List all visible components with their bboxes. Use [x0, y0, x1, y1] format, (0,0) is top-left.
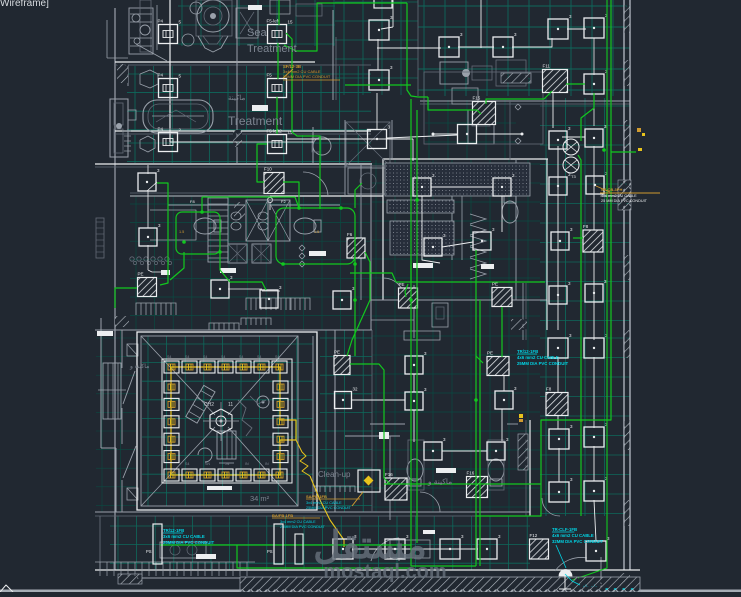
svg-text:PE: PE: [334, 350, 340, 355]
svg-text:F16: F16: [467, 471, 475, 476]
svg-text:32MM DIA PVC CONDUIT: 32MM DIA PVC CONDUIT: [552, 539, 604, 544]
svg-text:F5-left2: F5-left2: [267, 129, 283, 134]
svg-text:3x4 mm2 CU CABLE: 3x4 mm2 CU CABLE: [280, 520, 316, 524]
svg-text:TR-CLF-1FB: TR-CLF-1FB: [552, 527, 577, 532]
svg-text:BA/FB-1FB: BA/FB-1FB: [272, 513, 293, 518]
svg-text:F15: F15: [473, 96, 481, 101]
svg-text:JN: JN: [225, 462, 230, 466]
svg-text:P4: P4: [158, 73, 164, 78]
svg-text:S4: S4: [239, 355, 243, 359]
svg-text:P4: P4: [158, 19, 164, 24]
svg-text:Wireframe]: Wireframe]: [0, 0, 49, 9]
svg-text:Treatment: Treatment: [228, 114, 283, 128]
svg-text:Treatment: Treatment: [247, 43, 297, 55]
svg-text:S4: S4: [167, 355, 171, 359]
svg-text:PS: PS: [146, 549, 152, 554]
svg-text:1.5: 1.5: [314, 230, 319, 234]
svg-text:1.5: 1.5: [179, 230, 184, 234]
svg-text:25MM DIA PVC CONDUIT: 25MM DIA PVC CONDUIT: [163, 540, 215, 545]
svg-text:F5-left: F5-left: [267, 19, 281, 24]
svg-text:F2: F2: [281, 199, 286, 204]
svg-text:3x6 mm2 CU CABLE: 3x6 mm2 CU CABLE: [163, 534, 205, 539]
svg-text:SN: SN: [205, 462, 210, 466]
svg-text:F11: F11: [543, 64, 551, 69]
svg-text:32: 32: [353, 387, 359, 392]
svg-text:S4: S4: [257, 355, 261, 359]
svg-text:ماكينة و: ماكينة و: [427, 477, 452, 486]
svg-text:F6: F6: [347, 232, 353, 237]
svg-text:F8: F8: [546, 387, 552, 392]
svg-text:Sea: Sea: [247, 27, 267, 39]
svg-text:IN: IN: [245, 462, 249, 466]
svg-text:mostaql.com: mostaql.com: [323, 561, 446, 583]
svg-text:F10: F10: [264, 167, 272, 172]
svg-text:S4: S4: [203, 355, 207, 359]
svg-text:PE: PE: [138, 272, 144, 277]
svg-text:ماكينة و: ماكينة و: [129, 363, 149, 370]
svg-text:IN: IN: [265, 462, 269, 466]
svg-text:F16: F16: [385, 472, 393, 477]
svg-text:TR/12-1FB: TR/12-1FB: [517, 349, 538, 354]
svg-text:4x6 mm2 CU CABLE: 4x6 mm2 CU CABLE: [601, 194, 637, 198]
svg-text:34 m²: 34 m²: [250, 494, 270, 503]
svg-text:4x6 mm2 CU CABLE: 4x6 mm2 CU CABLE: [517, 355, 559, 360]
svg-text:F5: F5: [267, 73, 273, 78]
svg-text:15: 15: [288, 20, 294, 25]
svg-text:PS: PS: [267, 549, 273, 554]
svg-text:25 MM DIA PVC CONDUIT: 25 MM DIA PVC CONDUIT: [601, 199, 648, 203]
svg-text:S4: S4: [221, 355, 225, 359]
svg-text:ماكينة: ماكينة: [228, 94, 245, 102]
svg-text:S4: S4: [185, 462, 189, 466]
svg-text:F8: F8: [583, 224, 589, 229]
svg-text:25MM DIA PVC CONDUIT: 25MM DIA PVC CONDUIT: [306, 506, 352, 510]
svg-text:P4: P4: [158, 127, 164, 132]
svg-text:25MM DIA PVC CONDUIT: 25MM DIA PVC CONDUIT: [517, 361, 569, 366]
svg-text:S4: S4: [185, 355, 189, 359]
svg-text:T3: T3: [571, 174, 576, 179]
svg-text:PE: PE: [487, 351, 493, 356]
svg-text:3x4 mm2 CU CABLE: 3x4 mm2 CU CABLE: [306, 501, 342, 505]
svg-text:F12: F12: [530, 533, 538, 538]
svg-text:Clean-up: Clean-up: [318, 470, 351, 479]
svg-text:SF-CB-3PH: SF-CB-3PH: [601, 187, 622, 192]
svg-text:25MM DIA PVC CONDUIT: 25MM DIA PVC CONDUIT: [283, 74, 331, 79]
svg-text:11: 11: [228, 402, 233, 408]
svg-text:TR/12-1FB: TR/12-1FB: [163, 528, 184, 533]
svg-text:PE: PE: [399, 282, 405, 287]
svg-text:SA/FB-1FB: SA/FB-1FB: [306, 494, 327, 499]
svg-text:S4: S4: [275, 355, 279, 359]
svg-text:4x6 mm2 CU CABLE: 4x6 mm2 CU CABLE: [552, 533, 594, 538]
svg-text:F8: F8: [190, 199, 195, 204]
